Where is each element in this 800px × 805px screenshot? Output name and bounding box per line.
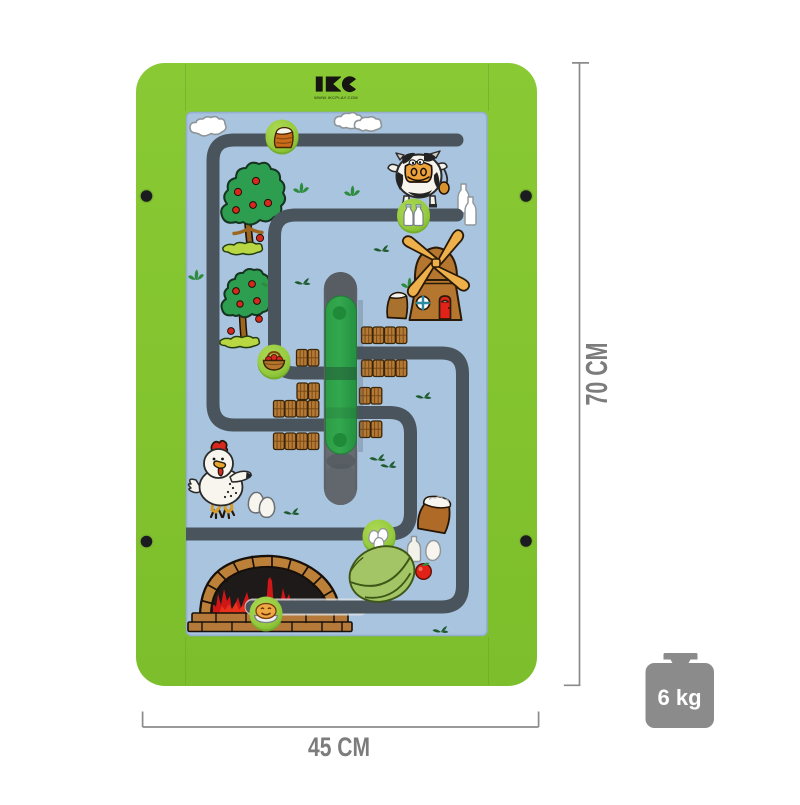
svg-text:6 kg: 6 kg (657, 685, 701, 710)
svg-text:WWW.IKCPLAY.COM: WWW.IKCPLAY.COM (314, 95, 358, 100)
svg-text:70 CM: 70 CM (579, 343, 614, 406)
svg-text:45 CM: 45 CM (308, 732, 370, 762)
